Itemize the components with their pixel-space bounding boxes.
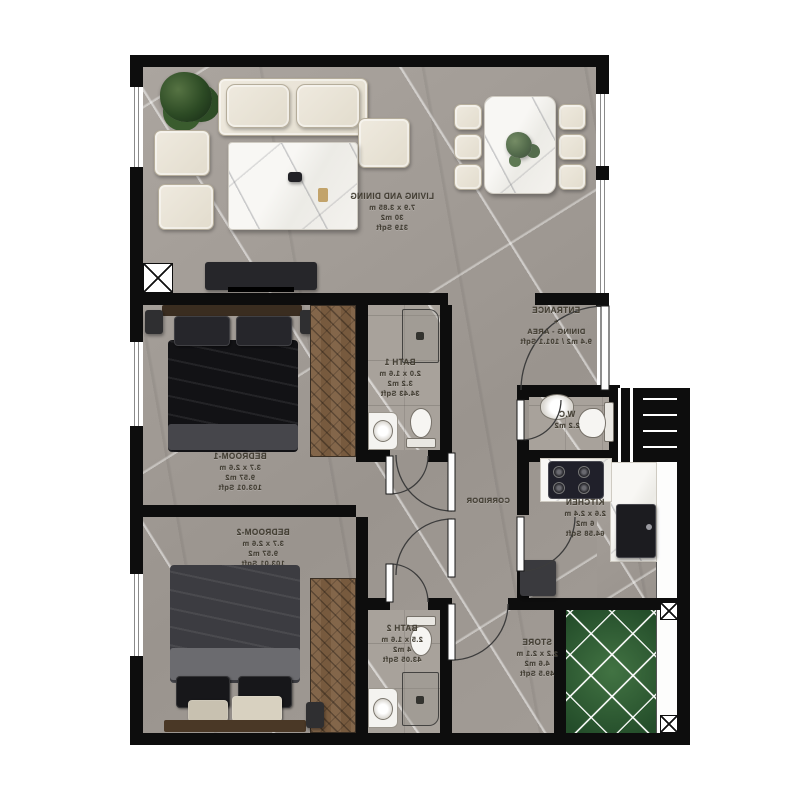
room-area: 9.57 m2	[185, 473, 295, 483]
room-label-bath1: BATH 1 2.0 x 1.6 m 3.2 m2 34.43 Sqft	[360, 358, 440, 399]
tv-screen	[228, 287, 294, 292]
room-area: 4 m2	[362, 645, 442, 655]
wall-bath1-south-b	[428, 450, 452, 462]
room-dims: 2.0 x 1.6 m	[360, 369, 440, 379]
column-marker-left	[143, 263, 173, 293]
dining-chair-r3	[558, 164, 586, 190]
bed2-headboard	[164, 720, 306, 732]
room-sqft: 34.43 Sqft	[360, 389, 440, 399]
sink-basin-1	[373, 420, 393, 442]
coffee-table-decor-gold	[318, 188, 328, 202]
room-plus: +	[506, 317, 606, 327]
coffee-table-decor	[288, 172, 302, 182]
room-label-store: STORE 2.2 x 2.1 m 4.6 m2 49.5 Sqft	[492, 638, 582, 679]
toilet-1-tank	[406, 438, 436, 448]
window-left-2	[130, 340, 143, 428]
wall-bath1-south-a	[356, 450, 390, 462]
room-sqft: 49.5 Sqft	[492, 669, 582, 679]
kitchen-faucet	[646, 524, 652, 530]
stove-cooktop	[548, 461, 604, 499]
wardrobe-1	[310, 305, 356, 457]
room-area: 9.4 m2 / 101.1 Sqft	[506, 337, 606, 347]
wall-corridor-south-c	[508, 598, 678, 610]
window-left-3	[130, 572, 143, 658]
dining-centerpiece	[506, 132, 532, 158]
room-sqft: 319 Sqft	[330, 223, 454, 233]
room-label-corridor: CORRIDOR	[455, 496, 521, 506]
room-label-bedroom2: BEDROOM-2 3.7 x 2.6 m 9.57 m2 103.01 Sqf…	[208, 528, 318, 569]
window-right-1	[596, 92, 609, 168]
armchair-left-1	[154, 130, 210, 176]
column-marker-right-2	[660, 715, 678, 733]
bed1-pillow-right	[236, 316, 292, 346]
wall-top	[130, 55, 609, 67]
room-dims: 7.9 x 3.85 m	[330, 203, 454, 213]
bed1-pillow-left	[174, 316, 230, 346]
column-marker-right-1	[660, 602, 678, 620]
room-area: 2.2 m2	[543, 421, 591, 431]
window-left-1	[130, 85, 143, 169]
wall-wc-north	[517, 385, 620, 397]
room-label-wc: W.C 2.2 m2	[543, 410, 591, 431]
room-label-bedroom1: BEDROOM-1 3.7 x 2.6 m 9.57 m2 103.01 Sqf…	[185, 452, 295, 493]
nightstand-b2-right	[306, 702, 324, 728]
room-label-living: LIVING AND DINING 7.9 x 3.85 m 30 m2 319…	[330, 192, 454, 233]
dining-chair-l3	[454, 164, 482, 190]
stove-burner	[553, 482, 565, 494]
room-sqft: 64.58 Sqft	[540, 529, 630, 539]
wall-living-south-a	[143, 293, 448, 305]
plant	[160, 72, 212, 122]
room-dims: 2.6 x 2.4 m	[540, 509, 630, 519]
kitchen-fridge	[520, 560, 556, 596]
room-area: 4.6 m2	[492, 659, 582, 669]
room-name: W.C	[543, 410, 591, 421]
room-area: 30 m2	[330, 213, 454, 223]
room-area: 6 m2	[540, 519, 630, 529]
service-shaft-1	[609, 388, 643, 462]
stove-burner	[578, 466, 590, 478]
dining-chair-r1	[558, 104, 586, 130]
wall-right-lower	[677, 388, 690, 745]
armchair-left-2	[158, 184, 214, 230]
bed2-pillow-cream-2	[188, 700, 228, 722]
wall-bottom	[130, 733, 690, 745]
room-dims: 2.5 x 1.6 m	[362, 635, 442, 645]
bed2-pillow-cream-1	[232, 696, 282, 722]
dining-chair-l2	[454, 134, 482, 160]
wall-entrance-stub	[596, 293, 609, 307]
room-area: 3.2 m2	[360, 379, 440, 389]
room-label-bath2: BATH 2 2.5 x 1.6 m 4 m2 43.05 Sqft	[362, 624, 442, 665]
room-name: CORRIDOR	[455, 496, 521, 506]
room-name: BATH 2	[362, 624, 442, 635]
dining-chair-r2	[558, 134, 586, 160]
wall-bath1-corridor	[440, 305, 452, 457]
sofa-cushion-line	[226, 84, 290, 128]
wall-bed1-bed2	[143, 505, 356, 517]
room-name: KITCHEN	[540, 498, 630, 509]
nightstand-b1-left	[145, 310, 163, 334]
room-dims: 2.2 x 2.1 m	[492, 649, 582, 659]
room-name: LIVING AND DINING	[330, 192, 454, 203]
room-name: ENTRANCE	[506, 306, 606, 317]
window-right-2	[596, 178, 609, 298]
sink-basin-2	[373, 698, 393, 720]
room-sqft: 43.05 Sqft	[362, 655, 442, 665]
dining-chair-l1	[454, 104, 482, 130]
floor-plan: LIVING AND DINING 7.9 x 3.85 m 30 m2 319…	[0, 0, 800, 800]
stove-burner	[553, 466, 565, 478]
room-name: BEDROOM-1	[185, 452, 295, 463]
wall-corridor-south-a	[356, 598, 390, 610]
tv-console	[205, 262, 317, 290]
room-label-kitchen: KITCHEN 2.6 x 2.4 m 6 m2 64.58 Sqft	[540, 498, 630, 539]
room-label-entrance: ENTRANCE + DINING - AREA 9.4 m2 / 101.1 …	[506, 306, 606, 347]
wall-corridor-south-b	[428, 598, 452, 610]
sofa-cushion-line2	[296, 84, 360, 128]
room-name: STORE	[492, 638, 582, 649]
armchair-right	[358, 118, 410, 168]
room-name: BEDROOM-2	[208, 528, 318, 539]
room-dims: 3.7 x 2.6 m	[185, 463, 295, 473]
stove-burner	[578, 482, 590, 494]
bed1-headboard	[162, 305, 302, 316]
shower-2-drain	[416, 696, 424, 704]
shower-1-drain	[416, 332, 424, 340]
room-area: 9.57 m2	[208, 549, 318, 559]
room-dims: 3.7 x 2.6 m	[208, 539, 318, 549]
room-sqft: 103.01 Sqft	[185, 483, 295, 493]
room-name: BATH 1	[360, 358, 440, 369]
service-shaft-2	[643, 388, 677, 462]
room-name2: DINING - AREA	[506, 327, 606, 337]
bed1-throw	[168, 424, 298, 450]
